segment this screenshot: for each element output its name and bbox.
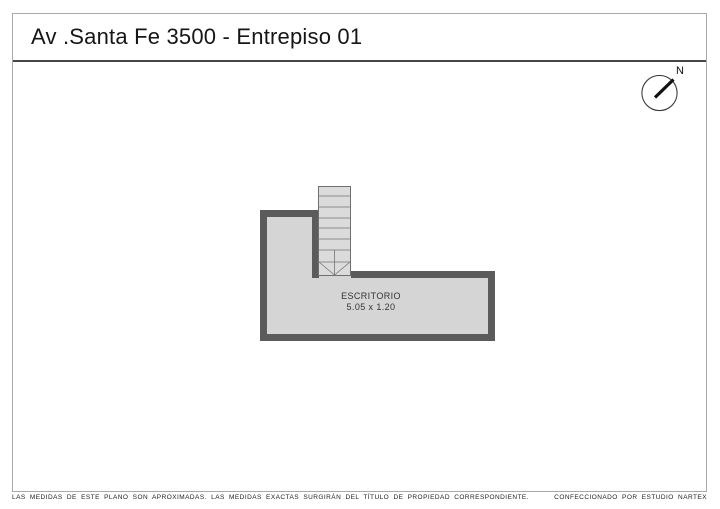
stairs-icon	[318, 186, 351, 276]
room-name: ESCRITORIO	[301, 291, 441, 302]
room-dimensions: 5.05 x 1.20	[301, 302, 441, 313]
compass-north-label: N	[676, 65, 684, 77]
footer-disclaimer: LAS MEDIDAS DE ESTE PLANO SON APROXIMADA…	[12, 494, 529, 501]
wall-top-left	[260, 210, 318, 217]
room-floor-left-wing	[260, 210, 319, 341]
wall-right	[488, 271, 495, 341]
compass: N	[629, 61, 689, 116]
footer: LAS MEDIDAS DE ESTE PLANO SON APROXIMADA…	[12, 494, 707, 501]
compass-icon	[641, 74, 678, 112]
wall-bottom	[260, 334, 495, 341]
wall-top-right	[351, 271, 495, 278]
title-band: Av .Santa Fe 3500 - Entrepiso 01	[13, 14, 706, 62]
room-label-block: ESCRITORIO 5.05 x 1.20	[301, 291, 441, 313]
page-title: Av .Santa Fe 3500 - Entrepiso 01	[31, 24, 362, 50]
wall-left	[260, 210, 267, 341]
footer-credit: CONFECCIONADO POR ESTUDIO NARTEX	[554, 494, 707, 501]
plan-sheet-frame: Av .Santa Fe 3500 - Entrepiso 01	[12, 13, 707, 492]
